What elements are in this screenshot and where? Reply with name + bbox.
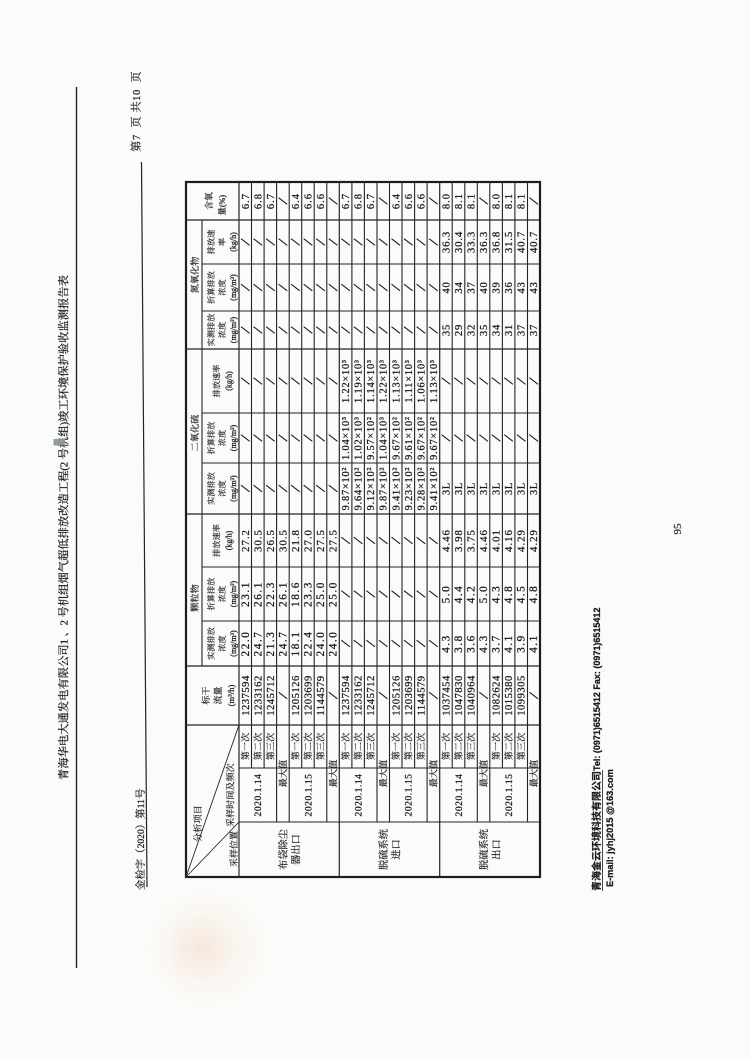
svg-text:1237594: 1237594 [341,675,352,716]
svg-text:27.5: 27.5 [328,529,340,552]
svg-text:7: 7 [132,134,143,140]
svg-text:36.3: 36.3 [478,231,490,253]
svg-text:8.1: 8.1 [454,193,465,209]
svg-text:9.67×10²: 9.67×10² [416,416,427,460]
svg-text:1082624: 1082624 [492,675,503,716]
svg-text:6.6: 6.6 [304,193,315,209]
svg-text:1015380: 1015380 [504,675,515,716]
svg-text:9.61×10²: 9.61×10² [404,416,415,460]
svg-text:4.1: 4.1 [528,634,540,653]
svg-text:31: 31 [504,324,515,336]
svg-text:(mg/m³): (mg/m³) [229,630,238,657]
svg-text:5.0: 5.0 [440,585,452,604]
svg-text:(mg/m³): (mg/m³) [229,424,238,451]
svg-text:29: 29 [454,324,465,336]
svg-text:Tel: (0971)6515412 Fax: (: Tel: (0971)6515412 Fax: (0971)6515412 [592,608,602,771]
svg-text:): ) [60,422,71,425]
svg-text:26.1: 26.1 [277,581,289,607]
svg-text:3.75: 3.75 [466,529,478,552]
svg-text:1.02×10³: 1.02×10³ [354,416,365,460]
svg-text:6.6: 6.6 [416,193,427,209]
svg-text:9.41×10²: 9.41×10² [429,467,440,511]
svg-text:21.8: 21.8 [290,529,302,552]
svg-text:18.6: 18.6 [290,581,302,607]
svg-text:1245712: 1245712 [266,675,277,716]
svg-text:4.5: 4.5 [516,585,528,604]
svg-text:(mg/m³): (mg/m³) [229,580,238,607]
svg-text:25.0: 25.0 [315,581,327,607]
svg-text:3.6: 3.6 [466,634,478,653]
svg-text:3L: 3L [479,482,490,495]
svg-text:30.4: 30.4 [453,231,465,253]
svg-text:22.3: 22.3 [265,581,277,607]
svg-text:23.1: 23.1 [240,581,252,607]
svg-text:3.98: 3.98 [453,529,465,552]
svg-text:3L: 3L [492,482,503,495]
svg-text:31.5: 31.5 [503,231,515,253]
svg-text:4.8: 4.8 [528,585,540,604]
svg-text:26.5: 26.5 [265,529,277,552]
svg-text:3L: 3L [467,482,478,495]
svg-text:4.3: 4.3 [440,634,452,653]
svg-text:40: 40 [479,281,490,293]
svg-text:6.7: 6.7 [366,193,377,209]
svg-text:27.2: 27.2 [240,529,252,552]
svg-text:25.0: 25.0 [328,581,340,607]
svg-text:34: 34 [454,281,465,293]
svg-text:24.7: 24.7 [252,631,264,657]
svg-text:6.7: 6.7 [266,193,277,209]
svg-text:6.7: 6.7 [241,193,252,209]
svg-text:32: 32 [467,324,478,336]
svg-text:(mg/m³): (mg/m³) [229,475,238,502]
svg-text:4.3: 4.3 [491,585,503,604]
svg-text:3L: 3L [529,482,540,495]
svg-text:22.0: 22.0 [240,631,252,657]
svg-text:9.67×10²: 9.67×10² [429,416,440,460]
svg-text:11: 11 [136,799,147,808]
svg-text:1.22×10³: 1.22×10³ [379,359,390,403]
svg-text:6.8: 6.8 [354,193,365,209]
svg-text:5.0: 5.0 [478,585,490,604]
svg-text:4.2: 4.2 [466,585,478,604]
svg-text:34: 34 [492,324,503,336]
svg-text:(%): (%) [218,195,227,207]
svg-text:37: 37 [467,281,478,293]
svg-text:1203699: 1203699 [404,675,415,716]
svg-text:2020.1.14: 2020.1.14 [354,774,365,817]
svg-text:36.3: 36.3 [440,231,452,253]
svg-text:24.0: 24.0 [315,631,327,657]
svg-text:3.7: 3.7 [491,634,503,653]
svg-text:2: 2 [60,620,71,625]
svg-text:4.4: 4.4 [453,585,465,604]
svg-text:2020.1.14: 2020.1.14 [454,774,465,817]
svg-text:43: 43 [517,281,528,293]
svg-text:9.87×10²: 9.87×10² [379,467,390,511]
svg-text:1.13×10³: 1.13×10³ [429,359,440,403]
svg-text:4.46: 4.46 [440,529,452,552]
svg-text:(kg/h): (kg/h) [225,530,234,550]
svg-text:6.8: 6.8 [253,193,264,209]
svg-text:4.3: 4.3 [478,634,490,653]
svg-text:1205126: 1205126 [291,675,302,716]
svg-text:27.5: 27.5 [315,529,327,552]
svg-text:3.8: 3.8 [453,634,465,653]
svg-text:10: 10 [132,89,143,101]
svg-text:2020.1.15: 2020.1.15 [303,774,314,817]
svg-text:3.9: 3.9 [516,634,528,653]
svg-text:1047830: 1047830 [454,675,465,716]
svg-text:8.0: 8.0 [492,193,503,209]
svg-text:24.7: 24.7 [277,631,289,657]
svg-text:8.1: 8.1 [517,193,528,209]
svg-text:(mg/m³): (mg/m³) [229,316,238,343]
svg-text:40.7: 40.7 [516,231,528,253]
svg-text:1144579: 1144579 [316,675,327,715]
svg-text:30.5: 30.5 [277,529,289,552]
svg-text:8.1: 8.1 [504,193,515,209]
svg-text:9.87×10²: 9.87×10² [341,467,352,511]
svg-text:21.3: 21.3 [265,631,277,657]
svg-text:35: 35 [441,324,452,336]
svg-text:35: 35 [479,324,490,336]
svg-text:(m³/h): (m³/h) [226,685,236,707]
svg-text:1237594: 1237594 [241,675,252,716]
svg-text:2020: 2020 [136,829,147,848]
svg-text:39: 39 [492,281,503,293]
svg-text:1.04×10³: 1.04×10³ [379,416,390,460]
svg-text:4.46: 4.46 [478,529,490,552]
svg-text:36.8: 36.8 [491,231,503,253]
svg-text:8.1: 8.1 [467,193,478,209]
svg-text:3L: 3L [517,482,528,495]
svg-text:4.8: 4.8 [503,585,515,604]
svg-text:1037454: 1037454 [441,675,452,716]
svg-text:26.1: 26.1 [252,581,264,607]
svg-text:40.7: 40.7 [528,231,540,253]
svg-text:1144579: 1144579 [416,675,427,715]
svg-text:E-mail: jyhj2015 @163.com: E-mail: jyhj2015 @163.com [605,769,615,887]
svg-text:23.3: 23.3 [303,581,315,607]
svg-text:1233162: 1233162 [253,675,264,716]
svg-text:9.41×10²: 9.41×10² [391,467,402,511]
svg-text:4.29: 4.29 [516,529,528,552]
svg-text:1.22×10³: 1.22×10³ [341,359,352,403]
svg-text:22.4: 22.4 [303,631,315,657]
svg-text:1.14×10³: 1.14×10³ [366,359,377,403]
svg-text:1.11×10³: 1.11×10³ [404,359,415,402]
svg-text:6.6: 6.6 [404,193,415,209]
svg-text:43: 43 [529,281,540,293]
svg-text:9.57×10²: 9.57×10² [366,416,377,460]
svg-text:40: 40 [441,281,452,293]
svg-text:(2: (2 [60,462,71,471]
svg-text:1.04×10³: 1.04×10³ [341,416,352,460]
svg-text:1040964: 1040964 [467,675,478,716]
svg-text:1: 1 [60,639,71,644]
svg-text:37: 37 [529,324,540,336]
svg-text:6.6: 6.6 [316,193,327,209]
svg-text:3L: 3L [441,482,452,495]
svg-text:37: 37 [517,324,528,336]
svg-text:9.64×10²: 9.64×10² [354,467,365,511]
svg-text:6.4: 6.4 [391,193,402,209]
svg-text:9.28×10²: 9.28×10² [416,467,427,511]
svg-text:9.12×10²: 9.12×10² [366,467,377,511]
svg-text:1.06×10³: 1.06×10³ [416,359,427,403]
svg-text:1203699: 1203699 [304,675,315,716]
svg-text:9.67×10²: 9.67×10² [391,416,402,460]
svg-text:1245712: 1245712 [366,675,377,716]
svg-text:24.0: 24.0 [328,631,340,657]
svg-text:1.19×10³: 1.19×10³ [354,359,365,403]
svg-text:(mg/m³): (mg/m³) [229,274,238,301]
svg-text:1099305: 1099305 [517,675,528,716]
svg-text:1233162: 1233162 [354,675,365,716]
svg-text:27.0: 27.0 [303,529,315,552]
svg-text:9.23×10²: 9.23×10² [404,467,415,511]
svg-text:18.1: 18.1 [290,631,302,657]
svg-text:36: 36 [504,281,515,293]
svg-text:6.7: 6.7 [341,193,352,209]
svg-text:1205126: 1205126 [391,675,402,716]
svg-text:2020.1.15: 2020.1.15 [404,774,415,817]
svg-text:(kg/h): (kg/h) [225,371,234,391]
svg-text:4.01: 4.01 [491,529,503,552]
svg-text:8.0: 8.0 [441,193,452,209]
svg-text:95: 95 [672,523,684,535]
svg-text:6.4: 6.4 [291,193,302,209]
svg-text:(kg/h): (kg/h) [229,232,238,252]
svg-text:1.13×10³: 1.13×10³ [391,359,402,403]
svg-text:4.16: 4.16 [503,529,515,552]
svg-text:3L: 3L [454,482,465,495]
svg-text:4.1: 4.1 [503,634,515,653]
svg-text:3L: 3L [504,482,515,495]
svg-text:33.3: 33.3 [466,231,478,253]
svg-text:4.29: 4.29 [528,529,540,552]
svg-text:30.5: 30.5 [252,529,264,552]
svg-text:2020.1.15: 2020.1.15 [504,774,515,817]
svg-text:2020.1.14: 2020.1.14 [253,774,264,817]
